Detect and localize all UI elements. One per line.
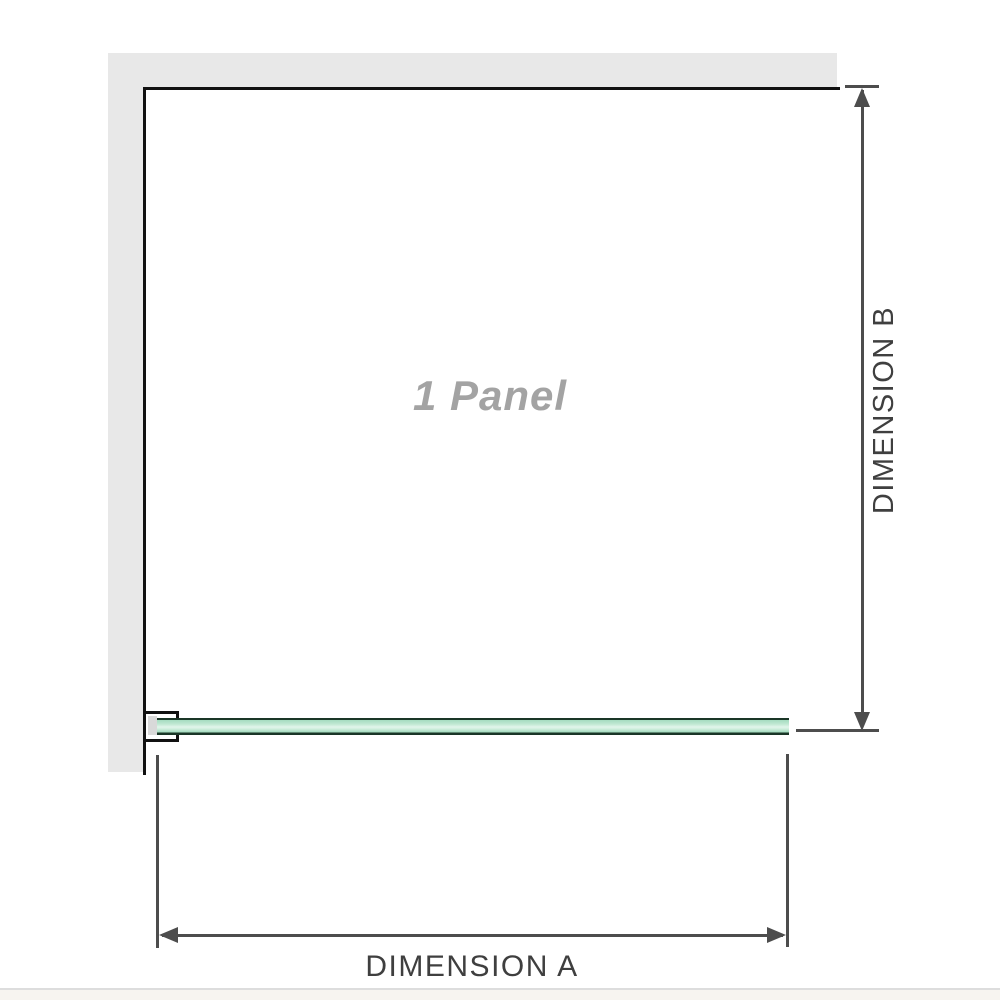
dim-a-ext-line-right — [786, 754, 789, 947]
glass-panel — [157, 718, 789, 735]
panel-count-label: 1 Panel — [143, 372, 837, 420]
dim-a-arrowhead-left-icon — [159, 927, 178, 943]
wall-bracket-pad — [148, 716, 157, 735]
dim-b-line — [861, 90, 864, 718]
dim-b-arrowhead-down-icon — [854, 712, 870, 731]
wall-left — [108, 53, 143, 772]
dim-a-label: DIMENSION A — [172, 950, 772, 984]
dim-a-ext-line-left — [156, 755, 159, 948]
dim-b-arrowhead-up-icon — [854, 88, 870, 107]
panel-outline — [143, 87, 840, 775]
dim-a-arrowhead-right-icon — [767, 927, 786, 943]
below-divider-area — [0, 990, 1000, 1000]
shower-panel-diagram: 1 Panel DIMENSION B DIMENSION A — [0, 0, 1000, 1000]
wall-top — [108, 53, 837, 87]
dim-a-line — [162, 934, 783, 937]
dim-b-label: DIMENSION B — [868, 200, 900, 620]
